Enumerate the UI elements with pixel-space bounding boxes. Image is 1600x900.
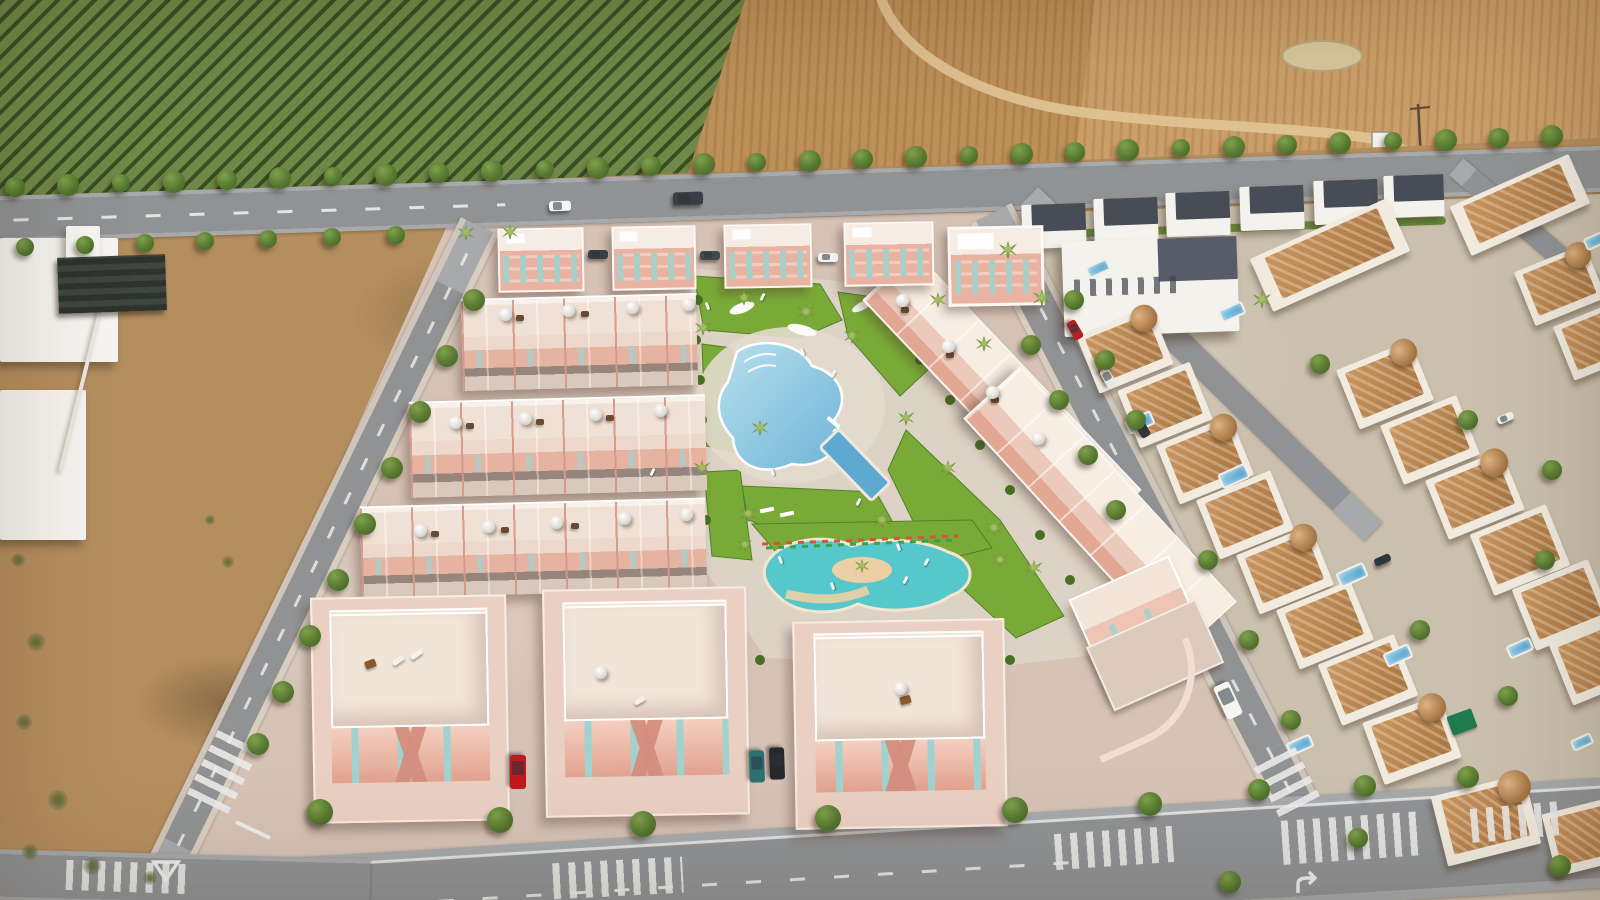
scrub-bush (48, 790, 68, 810)
tree (1095, 350, 1115, 370)
tree (1549, 855, 1571, 877)
parasol (482, 520, 495, 533)
tree (641, 156, 661, 176)
rooftop-furniture (516, 315, 524, 321)
car (700, 251, 720, 260)
tree (1219, 871, 1241, 893)
tree (815, 805, 841, 831)
parasol (626, 301, 639, 314)
scrub-bush (143, 871, 157, 885)
parasol (449, 416, 462, 429)
tree (1457, 766, 1479, 788)
scrub-bush (11, 553, 25, 567)
apartment-block (843, 221, 934, 287)
tree (1535, 550, 1555, 570)
tree (1064, 290, 1084, 310)
rooftop-furniture (466, 423, 474, 429)
tree (1172, 139, 1190, 157)
tree (272, 681, 294, 703)
rooftop-furniture (571, 523, 579, 529)
tree (436, 345, 458, 367)
tree (1435, 129, 1457, 151)
tree (748, 153, 766, 171)
tree (57, 174, 79, 196)
tree (1384, 132, 1402, 150)
tree (259, 230, 277, 248)
tree (381, 457, 403, 479)
tree (481, 160, 503, 182)
parasol (499, 308, 512, 321)
car (818, 253, 838, 262)
tree (630, 811, 656, 837)
tree (1049, 390, 1069, 410)
tree (327, 569, 349, 591)
crosswalk (552, 857, 684, 900)
parasol (594, 666, 607, 679)
apartment-block (611, 225, 696, 290)
tree (1277, 135, 1297, 155)
tree (1011, 143, 1033, 165)
tree (1198, 550, 1218, 570)
tree (1223, 136, 1245, 158)
tree (587, 157, 609, 179)
tree (112, 174, 130, 192)
tree (16, 238, 34, 256)
parasol (1032, 432, 1045, 445)
parasol (682, 298, 695, 311)
tree (799, 150, 821, 172)
tree (247, 733, 269, 755)
tree (1065, 142, 1085, 162)
parasol (414, 524, 427, 537)
tree (853, 149, 873, 169)
pink-villa (310, 594, 510, 823)
rooftop-furniture (606, 415, 614, 421)
tree (196, 232, 214, 250)
pink-villa (792, 618, 1008, 830)
scrub-bush (222, 556, 234, 568)
car (769, 747, 785, 780)
parasol (618, 512, 631, 525)
tree (324, 167, 342, 185)
pink-villa (542, 586, 750, 818)
tree (1106, 500, 1126, 520)
tree (323, 228, 341, 246)
parasol (589, 408, 602, 421)
tree (76, 236, 94, 254)
tree (1117, 139, 1139, 161)
rooftop-furniture (581, 311, 589, 317)
scrub-bush (27, 633, 45, 651)
parasol (550, 516, 563, 529)
tree (1281, 710, 1301, 730)
modern-house (1239, 185, 1304, 231)
turn-arrow (1298, 872, 1315, 893)
car (549, 201, 571, 212)
rooftop-furniture (946, 352, 954, 358)
tree (487, 807, 513, 833)
tree (536, 160, 554, 178)
tree (136, 234, 154, 252)
scrub-bush (83, 857, 101, 875)
car (673, 191, 703, 205)
tree (1248, 779, 1270, 801)
tree (217, 170, 237, 190)
tree (429, 163, 449, 183)
modern-house (1165, 191, 1230, 237)
apartment-block (947, 225, 1044, 307)
tree (1078, 445, 1098, 465)
tree (1458, 410, 1478, 430)
tree (387, 226, 405, 244)
rooftop-furniture (431, 531, 439, 537)
parasol (654, 404, 667, 417)
tree (1310, 354, 1330, 374)
parasol (680, 508, 693, 521)
scrub-bush (16, 714, 32, 730)
tree (354, 513, 376, 535)
apartment-block (723, 223, 812, 289)
tree (1498, 686, 1518, 706)
tree (1002, 797, 1028, 823)
aerial-render-scene (0, 0, 1600, 900)
rooftop-furniture (536, 419, 544, 425)
tree (1126, 410, 1146, 430)
townhouse-row (359, 498, 706, 599)
car (510, 755, 526, 789)
tree (299, 625, 321, 647)
tree (409, 401, 431, 423)
tree (163, 171, 185, 193)
parasol (986, 386, 999, 399)
townhouse-row (460, 293, 697, 391)
tree (1410, 620, 1430, 640)
parasol (894, 682, 907, 695)
car (749, 750, 765, 783)
tree (905, 146, 927, 168)
tree (1348, 828, 1368, 848)
parasol (942, 340, 955, 353)
tree (1239, 630, 1259, 650)
tree (307, 799, 333, 825)
tree (5, 177, 25, 197)
tree (463, 289, 485, 311)
tree (960, 146, 978, 164)
parasol (896, 294, 909, 307)
tree (1541, 125, 1563, 147)
parasol (519, 412, 532, 425)
tree (1354, 775, 1376, 797)
tree (1138, 792, 1162, 816)
tree (693, 153, 715, 175)
modern-house (1093, 197, 1158, 243)
tree (1021, 335, 1041, 355)
tree (375, 164, 397, 186)
tree (1489, 128, 1509, 148)
scrub-bush (205, 515, 215, 525)
rooftop-furniture (501, 527, 509, 533)
car (588, 250, 608, 259)
tree (1329, 132, 1351, 154)
rooftop-furniture (901, 307, 909, 313)
stop-line (236, 822, 270, 838)
tree (1542, 460, 1562, 480)
parasol (562, 304, 575, 317)
scrub-bush (22, 844, 38, 860)
tree (269, 167, 291, 189)
